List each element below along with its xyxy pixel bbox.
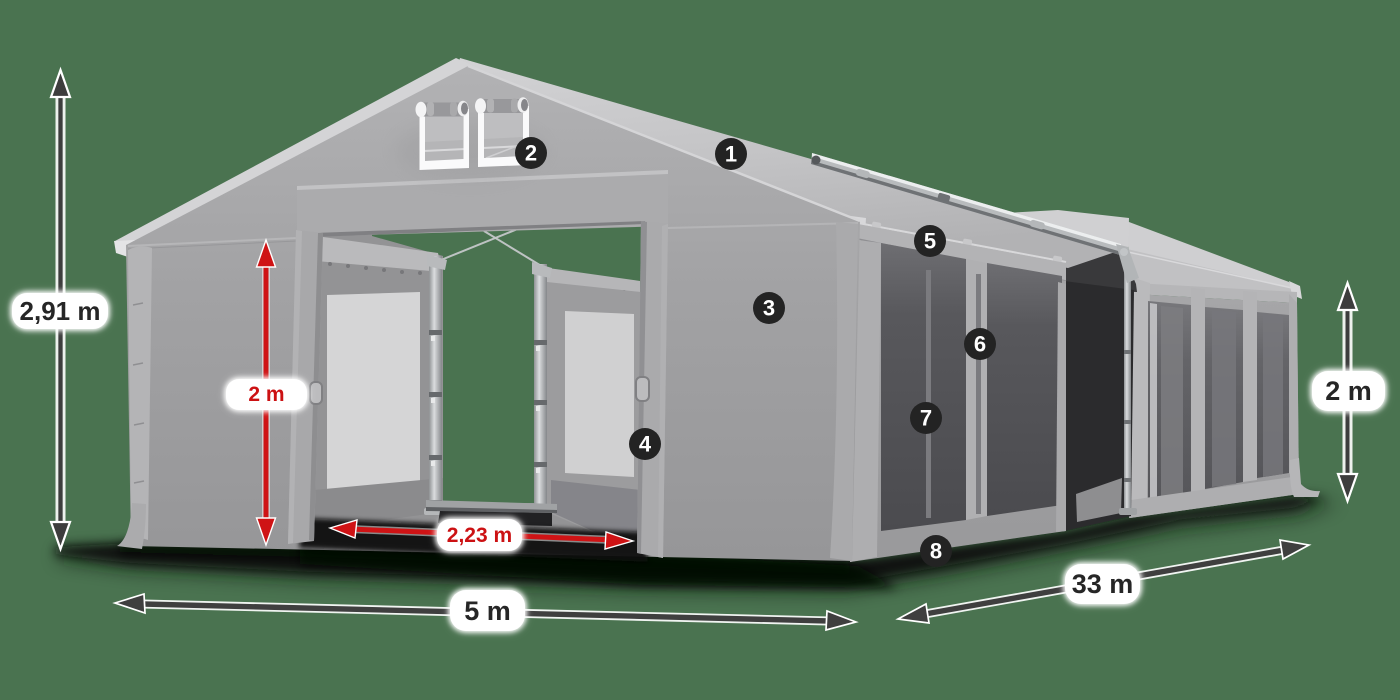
svg-text:3: 3 (763, 296, 775, 321)
svg-text:2: 2 (525, 141, 537, 166)
svg-text:2 m: 2 m (1325, 376, 1372, 406)
svg-text:5: 5 (924, 229, 936, 254)
svg-text:2,23 m: 2,23 m (447, 524, 512, 547)
svg-text:8: 8 (930, 539, 942, 564)
svg-text:5 m: 5 m (464, 596, 511, 626)
svg-text:2 m: 2 m (248, 383, 284, 406)
svg-text:2,91 m: 2,91 m (20, 296, 101, 326)
svg-text:7: 7 (920, 406, 932, 431)
svg-text:33 m: 33 m (1072, 569, 1134, 599)
svg-text:4: 4 (639, 432, 652, 457)
svg-text:1: 1 (725, 142, 737, 167)
svg-text:6: 6 (974, 332, 986, 357)
